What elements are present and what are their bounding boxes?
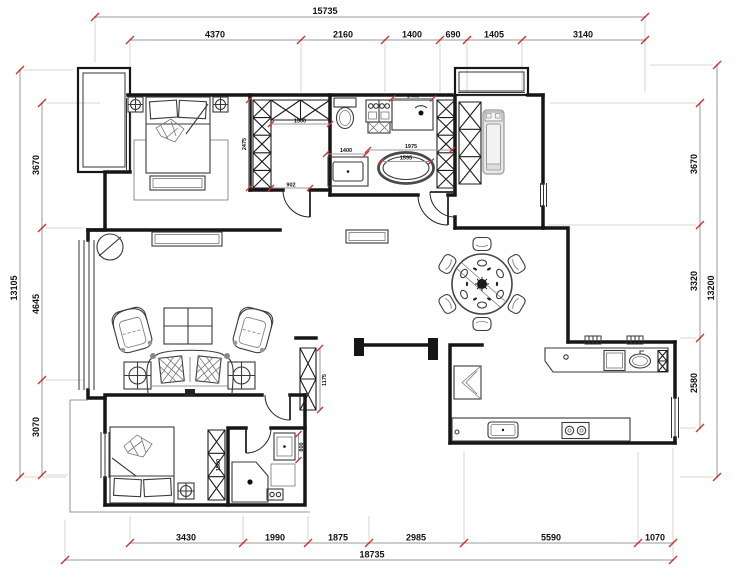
dim-bottom-seg: 3430	[176, 533, 196, 543]
cooktop	[562, 423, 589, 439]
dim-bottom-seg: 2985	[406, 533, 426, 543]
tv-console	[152, 232, 222, 246]
dim-left-seg: 4645	[31, 294, 41, 314]
master-bedroom	[128, 97, 229, 201]
nightstand	[178, 483, 195, 500]
nightstand	[128, 97, 144, 113]
gym-balcony	[455, 68, 528, 96]
dim-bottom-seg: 5590	[541, 533, 561, 543]
wardrobe	[253, 100, 271, 188]
shelf-strip	[658, 351, 667, 372]
dim-bottom-seg: 1070	[645, 533, 665, 543]
dining-chair	[473, 318, 491, 331]
dim-top-seg: 3140	[573, 30, 593, 40]
floor-plan-drawing: 15735 4370 2160 1400 690 1405 3140 3430 …	[0, 0, 740, 575]
bedroom2-door	[265, 395, 290, 420]
dim-left-overall: 13105	[9, 275, 19, 300]
console-table	[346, 230, 388, 243]
dim-bottom-seg: 1875	[328, 533, 348, 543]
dim-bottom-seg: 1990	[265, 533, 285, 543]
shower	[392, 100, 433, 130]
wardrobe	[271, 100, 330, 120]
bed-bench	[150, 176, 205, 190]
dim-left-seg: 3070	[31, 417, 41, 437]
wardrobe	[459, 102, 481, 184]
bedroom2-window	[101, 432, 109, 478]
dim-vanity: 1400	[340, 148, 352, 154]
shower-head-symbol	[415, 106, 427, 116]
kitchen	[452, 348, 668, 441]
plant-symbol	[97, 234, 123, 260]
dim-closet-width: 1500	[294, 119, 306, 125]
gym-room	[459, 102, 504, 184]
dimensions-top: 15735 4370 2160 1400 690 1405 3140	[91, 6, 649, 92]
master-bed	[146, 97, 210, 173]
dim-top-seg: 690	[445, 30, 460, 40]
bathroom: 1465 1975 1595 1400	[323, 94, 455, 189]
coffee-table	[164, 308, 212, 344]
dim-closet-door: 902	[286, 183, 295, 189]
dim-bedroom2-wardrobe: 1500	[216, 459, 222, 471]
dim-right-seg: 2580	[689, 373, 699, 393]
corner-shower	[232, 462, 268, 502]
treadmill	[483, 110, 504, 174]
ensuite-door	[246, 428, 271, 453]
dim-left-seg: 3670	[31, 155, 41, 175]
dining-table	[452, 254, 512, 314]
hatch-box	[368, 122, 390, 133]
armchair	[231, 305, 275, 354]
dim-top-overall: 15735	[312, 6, 337, 16]
dim-closet-depth: 2475	[242, 138, 248, 150]
master-balcony	[78, 68, 130, 172]
sofa-pillow	[159, 356, 184, 383]
living-room: 1175	[97, 230, 388, 413]
dim-right-seg: 3670	[689, 154, 699, 174]
kitchen-counter	[452, 418, 630, 441]
dimensions-left: 13105 3670 4645 3070	[9, 66, 100, 481]
living-room-window	[79, 240, 94, 390]
toilet	[334, 98, 356, 129]
bar-counter	[545, 348, 668, 372]
basin	[274, 433, 295, 460]
dim-right-overall: 13200	[706, 275, 716, 300]
sofa-pillow	[196, 356, 221, 383]
nightstand	[213, 97, 229, 113]
refrigerator	[454, 366, 481, 399]
bed	[110, 427, 174, 503]
dim-top-seg: 2160	[333, 30, 353, 40]
bar-sink	[630, 351, 651, 368]
dim-bathtub-zone: 1975	[405, 144, 417, 150]
floor-plan-canvas: 15735 4370 2160 1400 690 1405 3140 3430 …	[0, 0, 740, 575]
dim-basin: 800	[299, 442, 305, 451]
sofa	[147, 350, 233, 396]
dim-shower: 1465	[407, 94, 419, 100]
dim-right-seg: 3320	[689, 271, 699, 291]
washer	[267, 489, 283, 500]
walk-in-closet: 2475 1500 902	[242, 97, 333, 191]
bathroom-cabinet	[366, 100, 392, 133]
wardrobe: 1500	[208, 430, 225, 500]
dim-top-seg: 4370	[205, 30, 225, 40]
dishwasher	[604, 351, 625, 371]
bedroom2: 1500 800	[110, 427, 305, 503]
bathroom-door	[418, 195, 448, 225]
dim-hall-cabinet: 1175	[322, 374, 328, 386]
centerpiece	[475, 277, 489, 291]
shower-tray	[271, 464, 295, 486]
vanity	[328, 157, 368, 186]
closet-door	[283, 190, 310, 217]
dim-top-seg: 1400	[402, 30, 422, 40]
hall-cabinet: 1175	[300, 345, 328, 413]
kitchen-window	[672, 397, 679, 438]
dim-bottom-overall: 18735	[359, 550, 384, 560]
dim-top-seg: 1405	[484, 30, 504, 40]
dining-chair	[473, 238, 491, 251]
kitchen-sink	[488, 422, 518, 438]
gym-window	[541, 183, 547, 207]
linen-cabinet	[437, 100, 455, 188]
dim-bathtub: 1595	[400, 156, 412, 162]
armchair	[110, 305, 154, 354]
dining-area	[437, 238, 526, 331]
ensuite-bathroom: 800	[232, 431, 305, 502]
